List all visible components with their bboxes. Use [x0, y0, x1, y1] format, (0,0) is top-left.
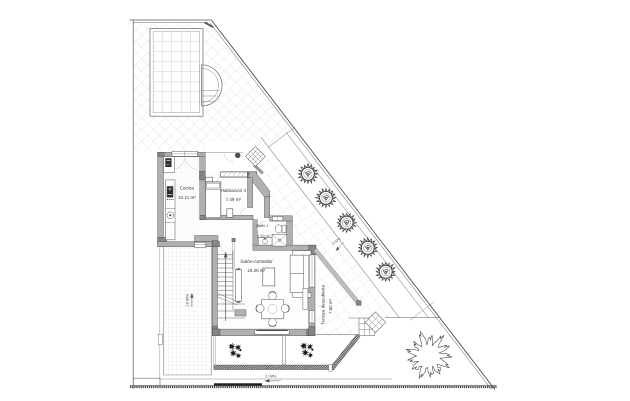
svg-text:7.60 m²: 7.60 m²	[328, 299, 333, 314]
svg-text:Baño 1: Baño 1	[256, 223, 268, 228]
svg-text:7.49 m²: 7.49 m²	[226, 197, 242, 202]
svg-text:Habitación 4: Habitación 4	[221, 188, 247, 193]
svg-text:Cocina: Cocina	[180, 185, 195, 190]
svg-text:10.11 m²: 10.11 m²	[178, 195, 196, 200]
svg-text:Salón-comedor: Salón-comedor	[240, 259, 273, 265]
svg-text:2.09%: 2.09%	[265, 373, 277, 378]
svg-text:19.36 m²: 19.36 m²	[247, 268, 266, 273]
svg-text:2.53 m²: 2.53 m²	[257, 233, 271, 238]
svg-text:Terraza descubierta: Terraza descubierta	[321, 285, 326, 325]
svg-text:18.86%: 18.86%	[186, 293, 190, 306]
